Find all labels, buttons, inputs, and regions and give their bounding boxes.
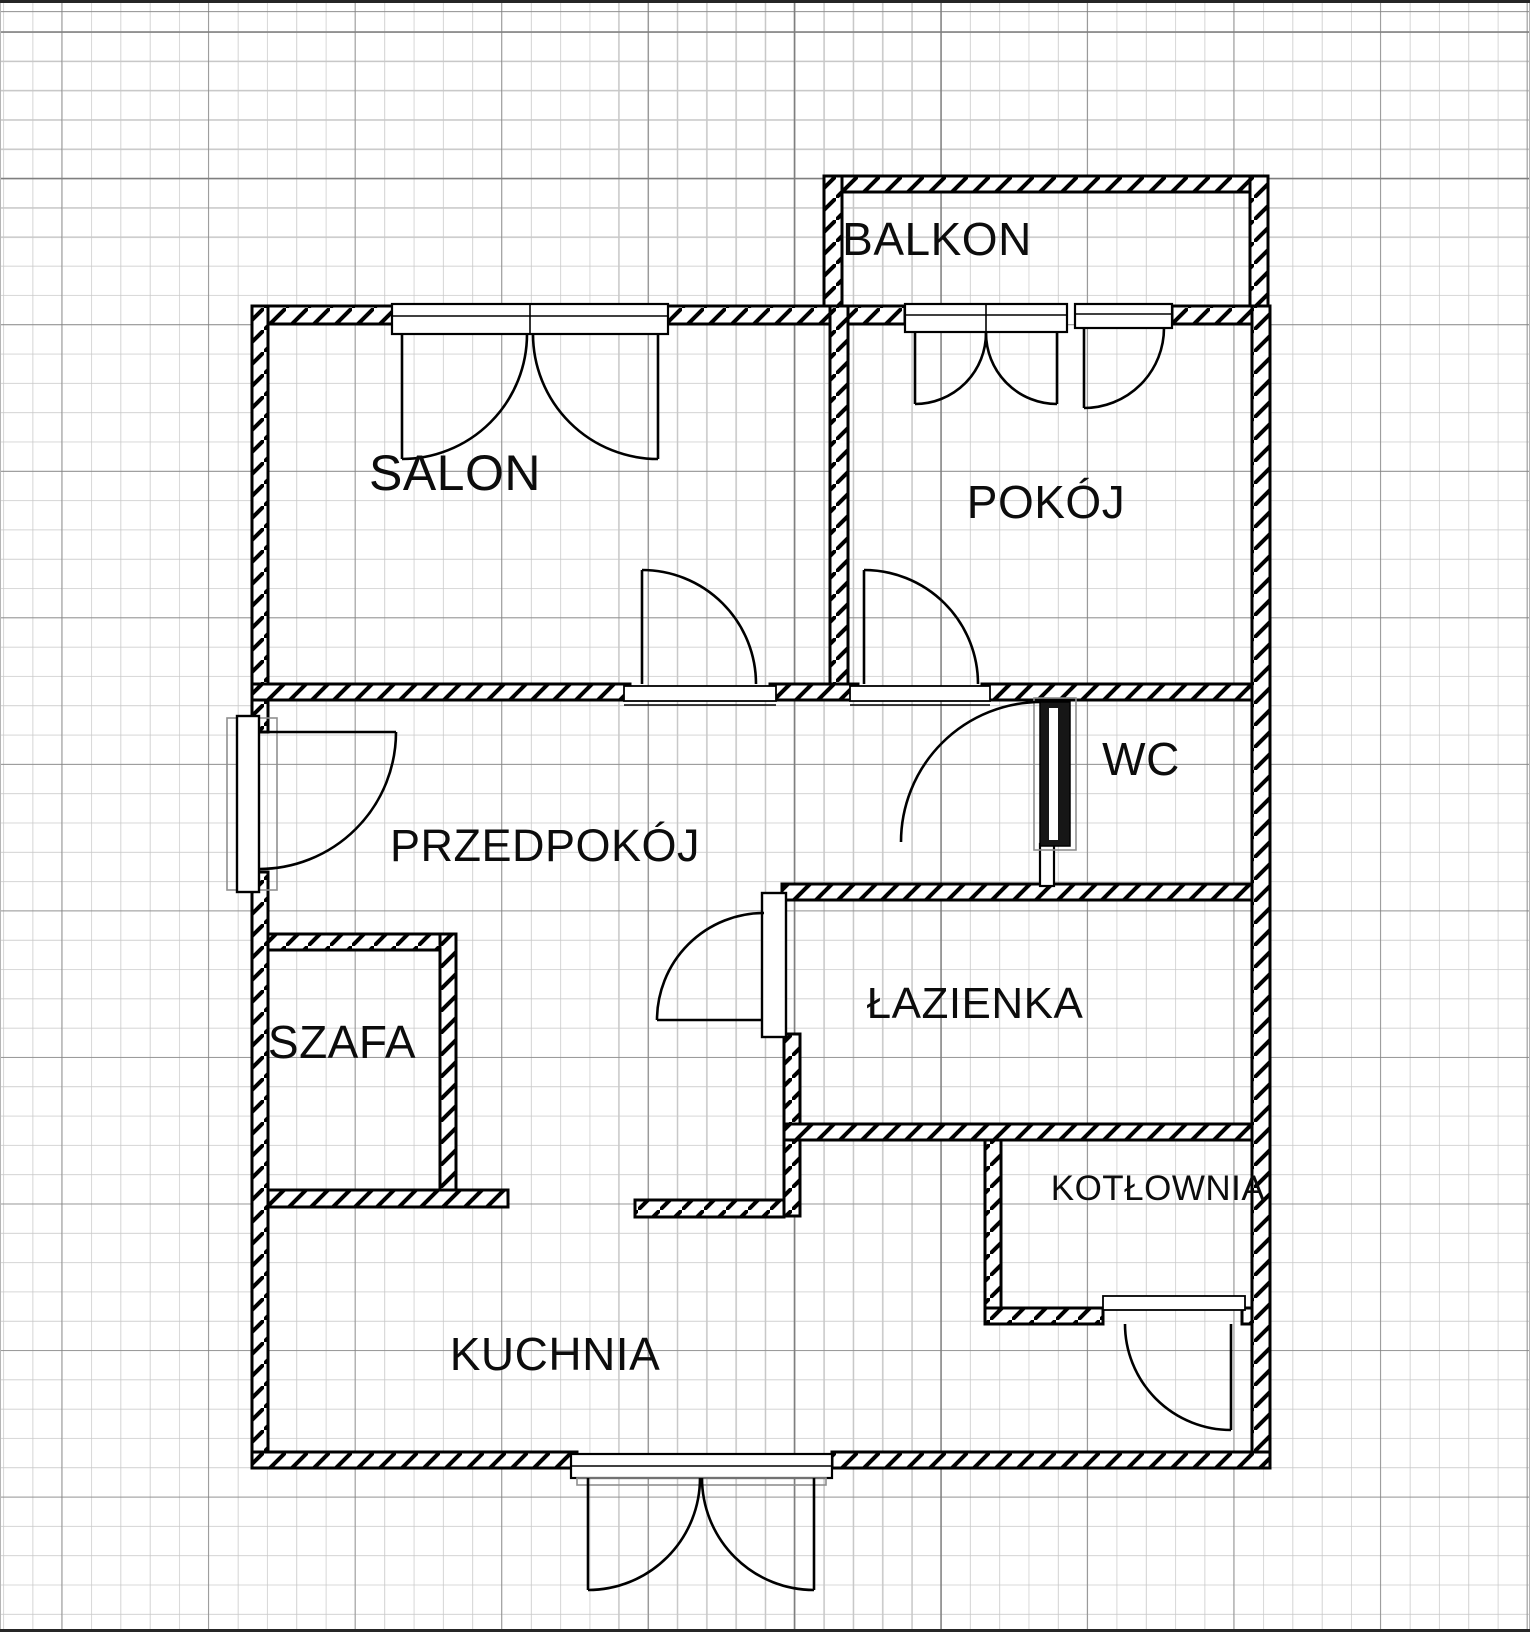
windows — [392, 304, 1067, 459]
lazienka-door-frame — [762, 893, 786, 1037]
wall-szafa-bottom — [268, 1190, 508, 1207]
wc-door — [901, 698, 1076, 850]
wall-left-upper — [252, 306, 268, 732]
balcony-door-swing-arc — [1084, 328, 1164, 408]
pokoj-window-right-swing-arc — [986, 333, 1057, 404]
pokoj-door-threshold — [850, 686, 990, 701]
lazienka-door-swing-arc — [657, 913, 764, 1020]
room-label-pokoj: POKÓJ — [967, 476, 1125, 528]
grid-paper: BALKON SALON POKÓJ WC PRZEDPOKÓJ SZAFA Ł… — [0, 0, 1530, 1632]
wall-top-pokoj-a — [848, 306, 905, 324]
wall-hallway-c — [982, 684, 1252, 700]
wall-top-salon-a — [252, 306, 396, 324]
entry-door — [227, 716, 396, 892]
floor-plan: BALKON SALON POKÓJ WC PRZEDPOKÓJ SZAFA Ł… — [0, 0, 1530, 1632]
room-label-lazienka: ŁAZIENKA — [867, 979, 1084, 1028]
wall-przedpokoj-kuchnia — [635, 1200, 784, 1217]
wall-balkon-left — [824, 176, 842, 306]
room-label-przedpokoj: PRZEDPOKÓJ — [390, 820, 700, 871]
salon-window — [392, 304, 668, 459]
wall-lazienka-bottom — [784, 1124, 1252, 1140]
wall-divider-salon-pokoj — [830, 306, 848, 700]
wall-hallway-a — [252, 684, 630, 700]
wall-balkon-top — [824, 176, 1268, 192]
room-label-salon: SALON — [369, 445, 541, 501]
kotlownia-door-threshold — [1103, 1296, 1245, 1310]
wall-hallway-b — [770, 684, 858, 700]
salon-window-left-swing-arc — [402, 334, 527, 459]
pokoj-door — [850, 570, 990, 705]
room-label-kotlownia: KOTŁOWNIA — [1051, 1169, 1266, 1208]
wall-right — [1252, 306, 1270, 1468]
kitchen-exterior-door — [571, 1454, 832, 1590]
wall-kotlownia-bottom-a — [985, 1308, 1103, 1324]
salon-door — [624, 570, 776, 705]
lazienka-door — [657, 893, 786, 1037]
pokoj-window-left-swing-arc — [915, 333, 986, 404]
wall-szafa-top — [268, 934, 456, 950]
pokoj-door-swing-arc — [864, 570, 978, 684]
wall-top-salon-b — [664, 306, 830, 324]
balcony-door — [1075, 304, 1172, 408]
wall-szafa-right — [440, 934, 456, 1207]
wall-balkon-right — [1250, 176, 1268, 306]
salon-door-swing-arc — [642, 570, 756, 684]
wall-kotlownia-left — [985, 1140, 1001, 1324]
wc-door-leaf-inner — [1049, 708, 1058, 840]
room-label-szafa: SZAFA — [268, 1016, 416, 1068]
kotlownia-door-swing-arc — [1125, 1324, 1231, 1430]
salon-door-threshold — [624, 686, 776, 701]
balcony-door-sill — [1075, 304, 1172, 328]
kitchen-door-left-swing-arc — [588, 1478, 700, 1590]
wall-left-lower — [252, 872, 268, 1468]
kitchen-door-right-swing-arc — [702, 1478, 814, 1590]
entry-door-swing-arc — [259, 732, 396, 869]
salon-window-right-swing-arc — [533, 334, 658, 459]
room-label-kuchnia: KUCHNIA — [450, 1328, 661, 1380]
wc-door-swing-arc — [901, 702, 1041, 842]
wall-lazienka-top — [782, 884, 1252, 900]
room-label-wc: WC — [1102, 733, 1180, 785]
entry-door-frame — [237, 716, 259, 892]
wall-bottom-b — [832, 1452, 1270, 1468]
wall-bottom-a — [252, 1452, 577, 1468]
room-label-balkon: BALKON — [842, 213, 1032, 265]
pokoj-window — [905, 304, 1067, 404]
kotlownia-door — [1103, 1296, 1245, 1430]
